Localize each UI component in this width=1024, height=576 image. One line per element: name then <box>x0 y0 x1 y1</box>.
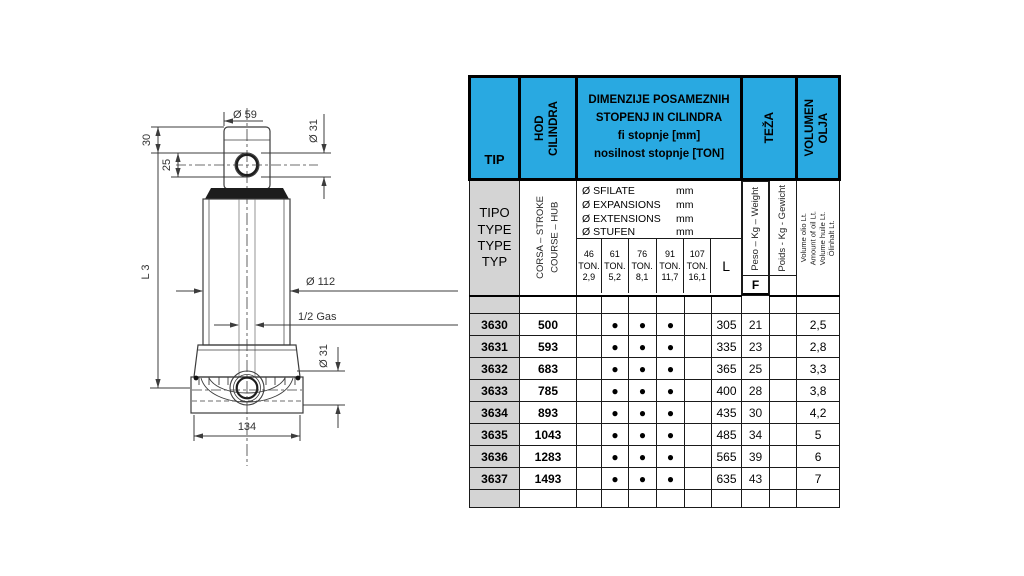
tonnage-columns: 46TON.2,9 61TON.5,2 76TON.8,1 91TON.11,7 <box>577 239 741 293</box>
cell-length: 365 <box>712 358 742 380</box>
cell-stage <box>577 358 602 380</box>
svg-text:L 3: L 3 <box>140 265 152 280</box>
cell-stage <box>577 424 602 446</box>
cell-stage: ● <box>602 358 629 380</box>
cell-stage <box>577 314 602 336</box>
cell-stage <box>577 336 602 358</box>
spec-table-wrapper: TIP HOD CILINDRA DIMENZIJE POSAMEZNIH ST… <box>468 75 841 508</box>
cell-poids <box>770 424 797 446</box>
cell-stage: ● <box>602 380 629 402</box>
dimension-body-diameter: Ø 112 <box>176 276 458 294</box>
cell-stage <box>577 402 602 424</box>
cell-stroke: 593 <box>520 336 577 358</box>
cell-stage <box>685 380 712 402</box>
cell-stroke: 1043 <box>520 424 577 446</box>
cell-stage <box>685 358 712 380</box>
diameter-legend: Ø SFILATEmm Ø EXPANSIONSmm Ø EXTENSIONSm… <box>577 182 741 239</box>
cell-stage: ● <box>629 336 657 358</box>
cell-stage: ● <box>657 358 685 380</box>
cell-stage <box>577 380 602 402</box>
svg-text:134: 134 <box>238 421 256 433</box>
cell-weight: 23 <box>742 336 770 358</box>
cell-stage: ● <box>629 402 657 424</box>
table-row: 36361283●●●565396 <box>470 446 840 468</box>
cell-weight: 43 <box>742 468 770 490</box>
svg-text:30: 30 <box>141 134 153 146</box>
dimension-eye-offset: 25 <box>161 153 181 177</box>
cell-stage <box>685 402 712 424</box>
cell-stage: ● <box>629 468 657 490</box>
svg-text:Ø 112: Ø 112 <box>306 276 335 288</box>
hod-line: HOD <box>534 101 548 156</box>
cell-weight: 28 <box>742 380 770 402</box>
cell-weight: 39 <box>742 446 770 468</box>
subheader-tipo: TIPO TYPE TYPE TYP <box>470 180 520 296</box>
cell-poids <box>770 336 797 358</box>
cell-stage: ● <box>602 446 629 468</box>
subheader-volume: Volume olio Lt. Amount of oil Lt. Volume… <box>797 180 840 296</box>
svg-text:25: 25 <box>161 159 173 171</box>
ton-col-61: 61TON.5,2 <box>602 239 629 293</box>
spacer-row <box>470 490 840 508</box>
dimension-top-width: Ø 59 <box>224 109 263 126</box>
dim-line: STOPENJ IN CILINDRA <box>578 110 740 128</box>
cell-volume: 3,8 <box>797 380 840 402</box>
cell-stage <box>685 424 712 446</box>
cell-stage: ● <box>629 314 657 336</box>
cell-weight: 21 <box>742 314 770 336</box>
cell-length: 435 <box>712 402 742 424</box>
cell-stage: ● <box>629 358 657 380</box>
cell-stroke: 1283 <box>520 446 577 468</box>
hod-line: CILINDRA <box>548 101 562 156</box>
cell-stage: ● <box>602 424 629 446</box>
cell-tip: 3633 <box>470 380 520 402</box>
cell-stage <box>685 314 712 336</box>
vol-line: OLJA <box>818 99 832 157</box>
table-row: 36351043●●●485345 <box>470 424 840 446</box>
tip-label: TIP <box>471 152 518 167</box>
cell-poids <box>770 446 797 468</box>
gland-flange <box>205 188 289 199</box>
cell-poids <box>770 314 797 336</box>
dim-line: DIMENZIJE POSAMEZNIH <box>578 92 740 110</box>
svg-text:Ø 59: Ø 59 <box>233 109 257 121</box>
table-row: 3634893●●●435304,2 <box>470 402 840 424</box>
cell-stroke: 1493 <box>520 468 577 490</box>
cell-weight: 30 <box>742 402 770 424</box>
cell-weight: 34 <box>742 424 770 446</box>
cell-stage: ● <box>629 380 657 402</box>
col-header-oil-volume: VOLUMEN OLJA <box>797 77 840 180</box>
ton-col-91: 91TON.11,7 <box>657 239 685 293</box>
cell-poids <box>770 380 797 402</box>
cell-stage: ● <box>657 446 685 468</box>
cell-length: 305 <box>712 314 742 336</box>
cell-stage <box>685 336 712 358</box>
ton-col-107: 107TON.16,1 <box>684 239 711 293</box>
subheader-corsa: CORSA – STROKE COURSE – HUB <box>520 180 577 296</box>
cell-stage: ● <box>657 468 685 490</box>
cell-stroke: 683 <box>520 358 577 380</box>
cell-tip: 3636 <box>470 446 520 468</box>
cell-volume: 4,2 <box>797 402 840 424</box>
spec-table: TIP HOD CILINDRA DIMENZIJE POSAMEZNIH ST… <box>468 75 841 508</box>
svg-text:Ø 31: Ø 31 <box>308 119 320 143</box>
header-row: TIP HOD CILINDRA DIMENZIJE POSAMEZNIH ST… <box>470 77 840 180</box>
subheader-stage-diameters: Ø SFILATEmm Ø EXPANSIONSmm Ø EXTENSIONSm… <box>577 180 742 296</box>
ton-col-46: 46TON.2,9 <box>577 239 602 293</box>
cell-tip: 3637 <box>470 468 520 490</box>
cell-stroke: 500 <box>520 314 577 336</box>
subheader-poids: Poids - Kg - Gewicht <box>770 180 797 296</box>
cell-weight: 25 <box>742 358 770 380</box>
table-row: 36371493●●●635437 <box>470 468 840 490</box>
cell-tip: 3635 <box>470 424 520 446</box>
dim-line: nosilnost stopnje [TON] <box>578 146 740 164</box>
cell-tip: 3632 <box>470 358 520 380</box>
ton-col-76: 76TON.8,1 <box>629 239 657 293</box>
cell-stage: ● <box>657 402 685 424</box>
datasheet-page: Ø 59 Ø 31 30 25 <box>0 0 1024 576</box>
cell-stage <box>685 446 712 468</box>
cell-stage: ● <box>657 336 685 358</box>
cell-volume: 3,3 <box>797 358 840 380</box>
cell-stage: ● <box>602 336 629 358</box>
cell-length: 485 <box>712 424 742 446</box>
cell-stage <box>577 468 602 490</box>
cell-stage: ● <box>602 314 629 336</box>
cell-stage: ● <box>602 402 629 424</box>
col-header-weight: TEŽA <box>742 77 797 180</box>
cell-stage: ● <box>657 424 685 446</box>
svg-text:Ø 31: Ø 31 <box>318 344 330 368</box>
cell-stage: ● <box>602 468 629 490</box>
cell-length: 565 <box>712 446 742 468</box>
cell-stroke: 893 <box>520 402 577 424</box>
dimension-closed-length: L 3 <box>140 153 190 388</box>
cell-stage: ● <box>629 446 657 468</box>
cell-tip: 3631 <box>470 336 520 358</box>
cell-poids <box>770 402 797 424</box>
dim-line: fi stopnje [mm] <box>578 128 740 146</box>
poids-sub-cell <box>770 275 796 293</box>
col-header-stroke: HOD CILINDRA <box>520 77 577 180</box>
cell-stage: ● <box>657 380 685 402</box>
cell-volume: 2,8 <box>797 336 840 358</box>
dimension-cap-height: 30 <box>141 127 247 177</box>
table-row: 3631593●●●335232,8 <box>470 336 840 358</box>
length-col-label: L <box>711 239 741 293</box>
cell-stage: ● <box>657 314 685 336</box>
cell-poids <box>770 468 797 490</box>
cell-poids <box>770 358 797 380</box>
cell-stage: ● <box>629 424 657 446</box>
dimension-base-eye: Ø 31 <box>297 344 345 428</box>
svg-text:1/2 Gas: 1/2 Gas <box>298 311 337 323</box>
table-row: 3630500●●●305212,5 <box>470 314 840 336</box>
col-header-tip: TIP <box>470 77 520 180</box>
cell-stage <box>577 446 602 468</box>
cell-stage <box>685 468 712 490</box>
cell-volume: 5 <box>797 424 840 446</box>
cell-volume: 6 <box>797 446 840 468</box>
cell-length: 400 <box>712 380 742 402</box>
subheader-row: TIPO TYPE TYPE TYP CORSA – STROKE COURSE… <box>470 180 840 296</box>
table-row: 3633785●●●400283,8 <box>470 380 840 402</box>
col-header-dimensions: DIMENZIJE POSAMEZNIH STOPENJ IN CILINDRA… <box>577 77 742 180</box>
cell-tip: 3634 <box>470 402 520 424</box>
dimension-port: 1/2 Gas <box>214 311 458 328</box>
cell-length: 635 <box>712 468 742 490</box>
subheader-peso: Peso – Kg – Weight F <box>742 181 769 295</box>
cell-volume: 2,5 <box>797 314 840 336</box>
cell-length: 335 <box>712 336 742 358</box>
dimension-top-eye: Ø 31 <box>261 114 331 199</box>
cell-volume: 7 <box>797 468 840 490</box>
cell-stroke: 785 <box>520 380 577 402</box>
spacer-row <box>470 296 840 314</box>
table-row: 3632683●●●365253,3 <box>470 358 840 380</box>
cell-tip: 3630 <box>470 314 520 336</box>
table-body: 3630500●●●305212,53631593●●●335232,83632… <box>470 314 840 490</box>
vol-line: VOLUMEN <box>804 99 818 157</box>
f-label: F <box>743 275 768 293</box>
